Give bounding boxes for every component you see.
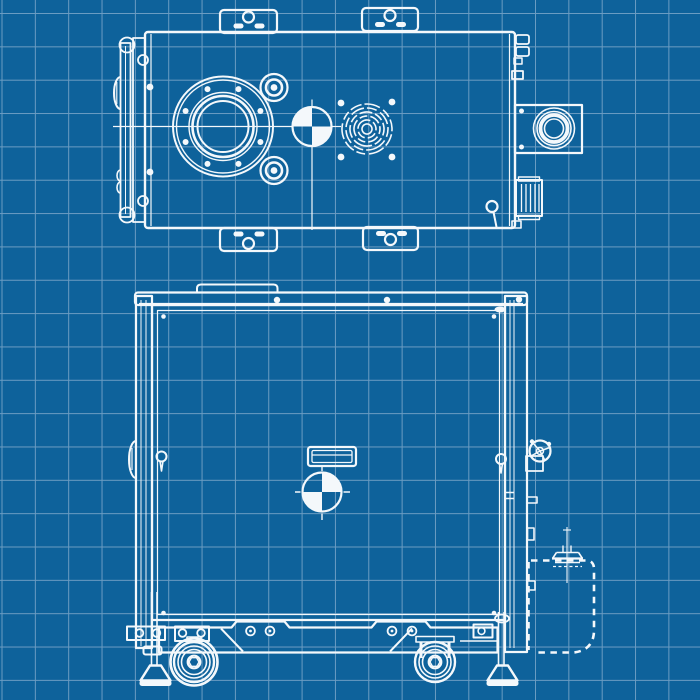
tab-bolt-hole xyxy=(243,238,254,249)
left-end-plate xyxy=(114,38,153,223)
ribbed-terminal-block xyxy=(512,177,542,228)
foot-cone xyxy=(488,666,518,681)
axle-hex-nut xyxy=(189,658,199,667)
panel-corner-screw xyxy=(161,314,166,319)
tab-bolt-hole xyxy=(385,10,396,21)
axle-hex-nut xyxy=(430,658,440,667)
tab-bolt-hole xyxy=(243,12,254,23)
foot-pad xyxy=(487,681,519,687)
tab-slot xyxy=(255,24,265,29)
blueprint-drawing xyxy=(0,0,700,700)
handwheel-knob xyxy=(530,439,534,443)
tab-slot xyxy=(375,22,385,27)
center-of-mass-symbol-side xyxy=(295,465,350,520)
tab-slot xyxy=(255,232,265,237)
center-of-mass-symbol-top xyxy=(293,107,332,146)
blueprint-canvas xyxy=(0,0,700,700)
side-view xyxy=(127,285,594,687)
tab-slot xyxy=(234,232,244,237)
lock-nut xyxy=(495,615,509,623)
box-screw xyxy=(519,145,524,150)
right-frame-rail xyxy=(505,296,527,652)
clamp-port-lower xyxy=(261,157,288,184)
handwheel-knob xyxy=(547,442,551,446)
panel-corner-screw xyxy=(161,611,166,616)
fan-screw-holes xyxy=(338,99,396,161)
foot-cone xyxy=(141,666,171,681)
tab-slot xyxy=(396,22,406,27)
panel-corner-screw xyxy=(492,611,497,616)
mounting-tab-bottom-left xyxy=(220,228,277,251)
latch-ring-top xyxy=(138,55,148,65)
panel-screw xyxy=(147,169,154,176)
rail-bolt xyxy=(516,296,522,302)
panel-corner-screw xyxy=(492,314,497,319)
side-connector-box xyxy=(515,105,582,153)
box-screw xyxy=(519,109,524,114)
left-frame-rail xyxy=(136,296,152,648)
tab-slot xyxy=(397,231,407,236)
caster-front xyxy=(171,637,218,686)
clamp-port-upper xyxy=(261,74,288,101)
hose-flange xyxy=(552,527,583,583)
hidden-pipe-outline xyxy=(529,561,595,653)
mounting-tab-top-left xyxy=(220,10,277,33)
rail-bolt xyxy=(384,297,390,303)
tab-slot xyxy=(376,231,386,236)
caster-rear xyxy=(415,637,455,683)
top-rail xyxy=(135,285,527,313)
top-view xyxy=(113,8,582,251)
tab-bolt-hole xyxy=(385,234,396,245)
handwheel-valve xyxy=(526,439,551,471)
eye-bolt xyxy=(487,201,498,227)
diagonal-brace xyxy=(221,629,243,652)
mounting-tab-bottom-right xyxy=(363,227,418,250)
lifting-handle xyxy=(197,285,278,293)
mounting-tab-top-right xyxy=(362,8,418,31)
diagonal-brace xyxy=(390,629,412,652)
rail-bolt xyxy=(274,297,280,303)
latch-ring-bottom xyxy=(138,196,148,206)
nameplate-slot xyxy=(308,447,356,466)
panel-screw xyxy=(147,84,154,91)
tab-slot xyxy=(234,24,244,29)
foot-pad xyxy=(140,681,172,687)
